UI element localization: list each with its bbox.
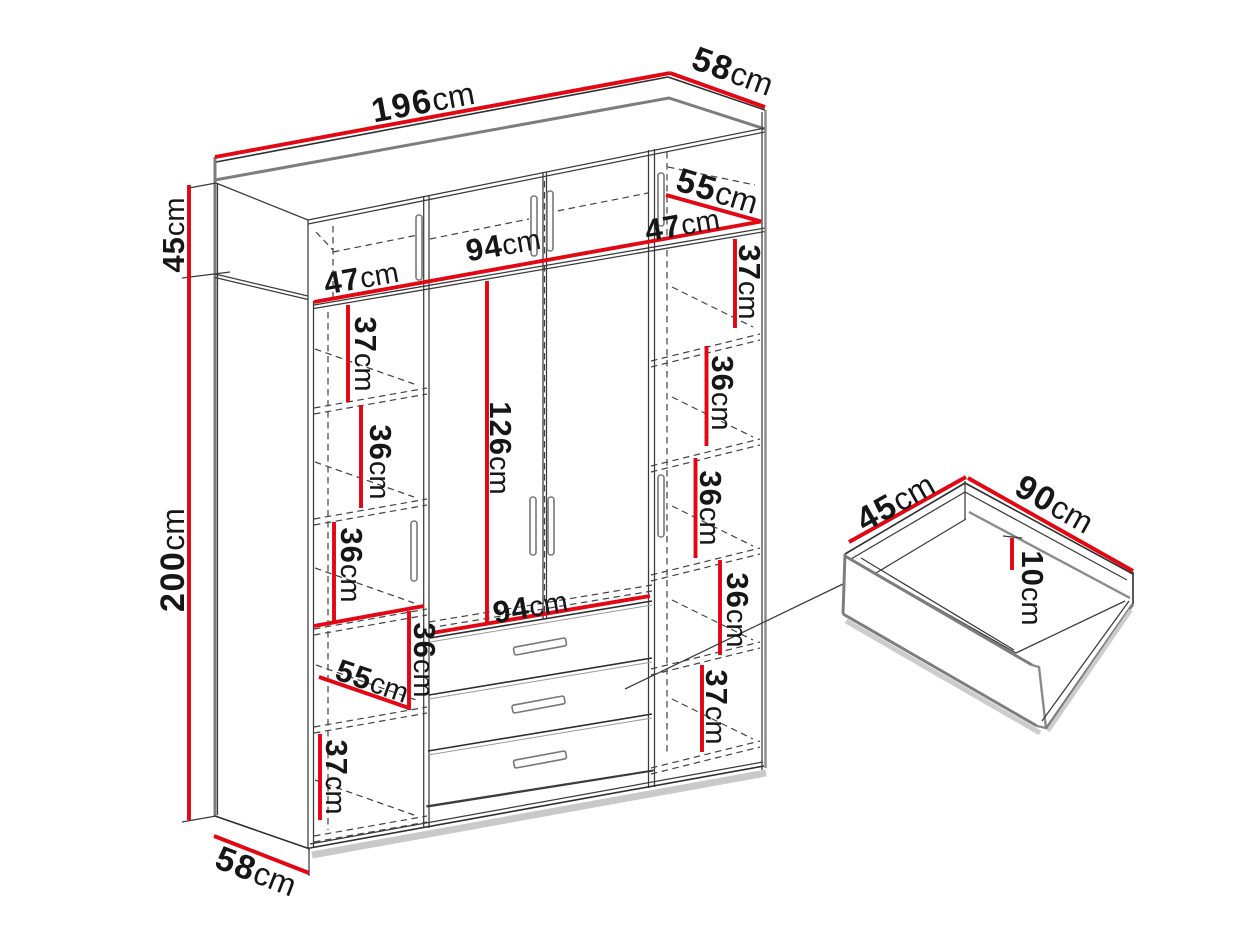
svg-text:36cm: 36cm (705, 355, 740, 430)
svg-text:36cm: 36cm (693, 470, 728, 545)
svg-text:126cm: 126cm (483, 401, 518, 494)
svg-text:37cm: 37cm (319, 739, 354, 814)
svg-text:10cm: 10cm (1015, 550, 1050, 625)
svg-text:36cm: 36cm (720, 572, 755, 647)
svg-text:36cm: 36cm (407, 622, 442, 697)
svg-text:37cm: 37cm (732, 244, 767, 319)
svg-text:36cm: 36cm (334, 527, 369, 602)
svg-text:37cm: 37cm (699, 669, 734, 744)
svg-text:200cm: 200cm (154, 508, 192, 612)
svg-text:45cm: 45cm (156, 197, 191, 272)
svg-text:36cm: 36cm (363, 424, 398, 499)
svg-text:37cm: 37cm (348, 316, 383, 391)
